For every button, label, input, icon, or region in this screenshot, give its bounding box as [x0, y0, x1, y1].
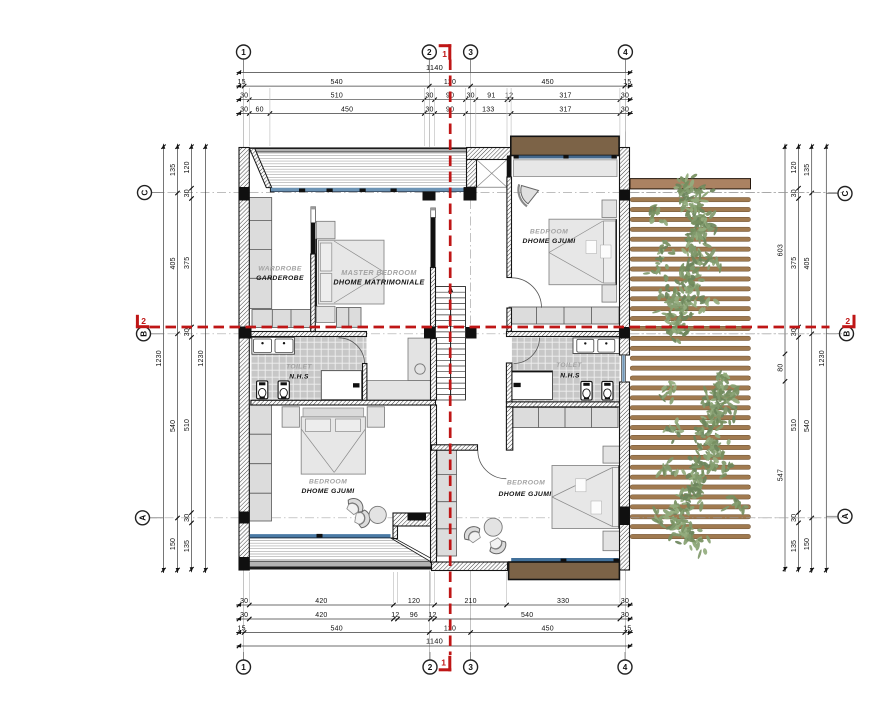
svg-text:B: B — [842, 331, 851, 337]
svg-text:540: 540 — [170, 420, 177, 432]
svg-text:BEDROOM: BEDROOM — [507, 480, 545, 487]
svg-text:WARDROBE: WARDROBE — [258, 266, 302, 273]
svg-text:GARDEROBE: GARDEROBE — [256, 275, 304, 282]
svg-text:135: 135 — [184, 540, 191, 552]
svg-text:2: 2 — [427, 48, 432, 57]
svg-text:1: 1 — [241, 663, 246, 672]
svg-text:450: 450 — [341, 107, 353, 114]
svg-text:30: 30 — [184, 328, 191, 336]
svg-text:540: 540 — [331, 79, 343, 86]
svg-text:30: 30 — [184, 189, 191, 197]
svg-text:N.H.S: N.H.S — [560, 373, 580, 380]
svg-text:30: 30 — [621, 93, 629, 100]
svg-text:135: 135 — [170, 164, 177, 176]
svg-text:C: C — [140, 190, 149, 196]
svg-text:DHOME GJUMI: DHOME GJUMI — [498, 491, 551, 498]
svg-text:1230: 1230 — [156, 350, 163, 366]
svg-text:4: 4 — [623, 663, 628, 672]
svg-text:DHOME GJUMI: DHOME GJUMI — [301, 488, 354, 495]
svg-text:15: 15 — [238, 79, 246, 86]
svg-text:1230: 1230 — [819, 350, 826, 366]
svg-text:547: 547 — [778, 469, 785, 481]
svg-text:135: 135 — [791, 540, 798, 552]
svg-text:15: 15 — [238, 626, 246, 633]
svg-text:120: 120 — [408, 598, 420, 605]
svg-text:MASTER BEDROOM: MASTER BEDROOM — [341, 268, 417, 277]
svg-text:91: 91 — [487, 93, 495, 100]
svg-text:TOILET: TOILET — [286, 363, 312, 370]
svg-text:BEDROOM: BEDROOM — [530, 229, 568, 236]
svg-text:30: 30 — [621, 107, 629, 114]
svg-text:DHOME GJUMI: DHOME GJUMI — [522, 238, 575, 245]
svg-text:2: 2 — [845, 316, 850, 326]
svg-text:12: 12 — [505, 93, 513, 100]
svg-text:133: 133 — [482, 107, 494, 114]
svg-text:120: 120 — [184, 161, 191, 173]
svg-text:12: 12 — [428, 612, 436, 619]
svg-text:317: 317 — [559, 93, 571, 100]
svg-text:1230: 1230 — [198, 350, 205, 366]
svg-text:30: 30 — [240, 598, 248, 605]
svg-text:80: 80 — [778, 364, 785, 372]
svg-text:120: 120 — [791, 161, 798, 173]
svg-text:317: 317 — [559, 107, 571, 114]
svg-text:30: 30 — [184, 514, 191, 522]
svg-text:30: 30 — [621, 598, 629, 605]
svg-text:1: 1 — [241, 48, 246, 57]
svg-text:30: 30 — [425, 107, 433, 114]
svg-text:375: 375 — [791, 257, 798, 269]
svg-text:510: 510 — [184, 419, 191, 431]
svg-text:510: 510 — [331, 93, 343, 100]
svg-text:DHOME MATRIMONIALE: DHOME MATRIMONIALE — [333, 278, 424, 287]
svg-text:450: 450 — [542, 79, 554, 86]
svg-text:1: 1 — [442, 49, 447, 59]
svg-text:30: 30 — [240, 93, 248, 100]
svg-text:1140: 1140 — [426, 637, 443, 646]
svg-text:405: 405 — [804, 257, 811, 269]
svg-text:603: 603 — [778, 244, 785, 256]
svg-text:3: 3 — [468, 663, 473, 672]
svg-text:96: 96 — [410, 612, 418, 619]
svg-text:30: 30 — [240, 612, 248, 619]
svg-text:540: 540 — [521, 612, 533, 619]
svg-text:4: 4 — [623, 48, 628, 57]
svg-text:BEDROOM: BEDROOM — [309, 479, 347, 486]
svg-text:A: A — [841, 513, 850, 519]
svg-text:12: 12 — [391, 612, 399, 619]
svg-text:3: 3 — [468, 48, 473, 57]
svg-text:150: 150 — [170, 538, 177, 550]
svg-text:15: 15 — [623, 79, 631, 86]
svg-text:330: 330 — [557, 598, 569, 605]
svg-text:150: 150 — [804, 538, 811, 550]
svg-text:510: 510 — [791, 419, 798, 431]
svg-text:30: 30 — [791, 328, 798, 336]
svg-text:30: 30 — [425, 93, 433, 100]
svg-text:60: 60 — [256, 107, 264, 114]
svg-text:C: C — [841, 190, 850, 196]
svg-text:540: 540 — [331, 626, 343, 633]
svg-text:135: 135 — [804, 164, 811, 176]
svg-text:15: 15 — [623, 626, 631, 633]
svg-text:540: 540 — [804, 420, 811, 432]
svg-text:405: 405 — [170, 257, 177, 269]
svg-text:210: 210 — [464, 598, 476, 605]
svg-text:375: 375 — [184, 257, 191, 269]
svg-text:30: 30 — [791, 189, 798, 197]
svg-text:30: 30 — [621, 612, 629, 619]
svg-text:TOILET: TOILET — [556, 362, 582, 369]
svg-text:30: 30 — [467, 93, 475, 100]
svg-text:420: 420 — [315, 598, 327, 605]
svg-text:B: B — [139, 331, 148, 337]
svg-text:1: 1 — [441, 658, 446, 668]
svg-text:1140: 1140 — [426, 63, 443, 72]
svg-text:2: 2 — [428, 663, 433, 672]
svg-text:2: 2 — [141, 316, 146, 326]
svg-text:30: 30 — [240, 107, 248, 114]
svg-text:450: 450 — [542, 626, 554, 633]
svg-text:A: A — [138, 515, 147, 521]
svg-text:N.H.S: N.H.S — [289, 373, 309, 380]
svg-text:420: 420 — [315, 612, 327, 619]
